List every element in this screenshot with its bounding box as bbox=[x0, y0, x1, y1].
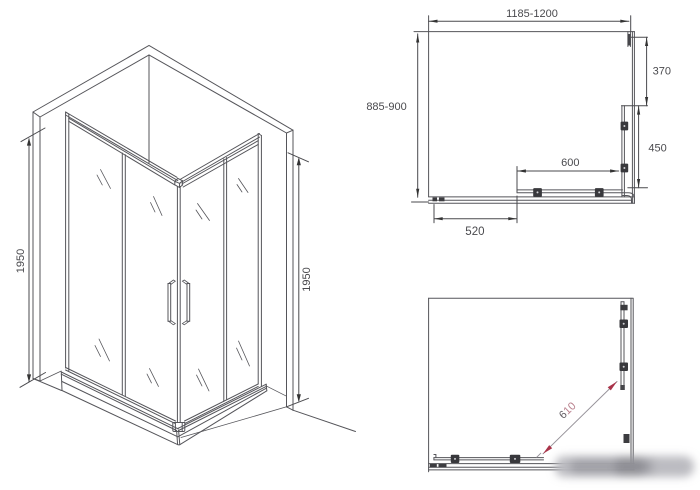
svg-text:1185-1200: 1185-1200 bbox=[506, 8, 558, 20]
svg-text:1950: 1950 bbox=[15, 249, 27, 273]
svg-text:610: 610 bbox=[557, 400, 579, 421]
svg-text:600: 600 bbox=[561, 157, 579, 169]
svg-text:1950: 1950 bbox=[301, 267, 313, 291]
svg-text:520: 520 bbox=[465, 226, 484, 238]
svg-text:370: 370 bbox=[653, 66, 671, 78]
svg-text:450: 450 bbox=[648, 143, 666, 155]
svg-text:885-900: 885-900 bbox=[366, 101, 406, 113]
